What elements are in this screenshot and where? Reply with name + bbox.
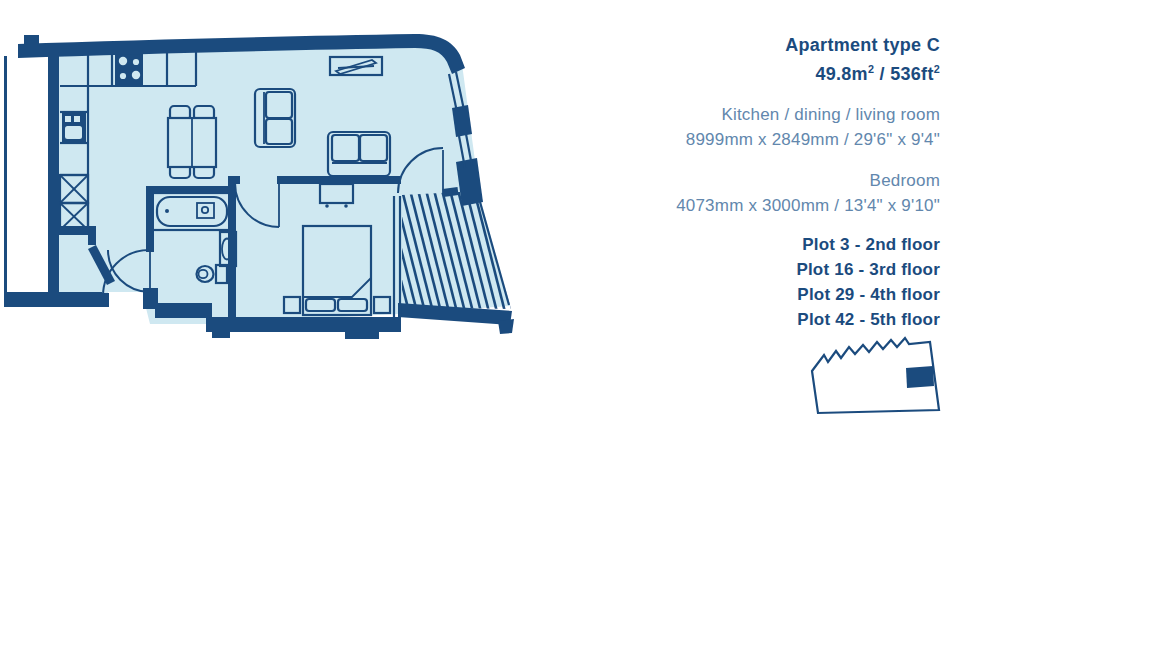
plot-list: Plot 3 - 2nd floor Plot 16 - 3rd floor P… xyxy=(520,232,940,332)
entrance-opening xyxy=(108,292,144,308)
apartment-area: 49.8m2 / 536ft2 xyxy=(520,57,940,86)
bedroom-wall xyxy=(277,176,401,184)
room-dimensions: 4073mm x 3000mm / 13'4" x 9'10" xyxy=(520,193,940,218)
room-info: Kitchen / dining / living room 8999mm x … xyxy=(520,102,940,152)
sofa-icon xyxy=(328,132,390,176)
bottom-wall xyxy=(206,317,401,332)
area-imperial: 536ft xyxy=(890,64,934,84)
room-name: Kitchen / dining / living room xyxy=(520,102,940,127)
room-dimensions: 8999mm x 2849mm / 29'6" x 9'4" xyxy=(520,127,940,152)
keyplan-unit-marker xyxy=(906,366,934,388)
bathroom-wall xyxy=(146,186,236,193)
plot-row: Plot 3 - 2nd floor xyxy=(520,232,940,257)
loveseat-icon xyxy=(255,89,295,147)
left-wall xyxy=(48,56,59,296)
area-metric: 49.8m xyxy=(815,64,868,84)
area-separator: / xyxy=(874,64,890,84)
keyplan xyxy=(800,336,950,428)
room-name: Bedroom xyxy=(520,168,940,193)
plot-row: Plot 29 - 4th floor xyxy=(520,282,940,307)
plot-row: Plot 16 - 3rd floor xyxy=(520,257,940,282)
plot-row: Plot 42 - 5th floor xyxy=(520,307,940,332)
sink-icon xyxy=(62,112,86,143)
wall-notch xyxy=(24,35,39,44)
bed-icon xyxy=(303,226,371,315)
area-imperial-sup: 2 xyxy=(934,63,940,75)
bottom-left-wall xyxy=(4,292,102,307)
floorplan xyxy=(0,0,540,348)
info-panel: Apartment type C 49.8m2 / 536ft2 Kitchen… xyxy=(520,33,940,332)
hob-icon xyxy=(115,50,143,86)
room-info: Bedroom 4073mm x 3000mm / 13'4" x 9'10" xyxy=(520,168,940,218)
apartment-title: Apartment type C xyxy=(520,33,940,57)
lightwell-strip xyxy=(4,56,48,294)
